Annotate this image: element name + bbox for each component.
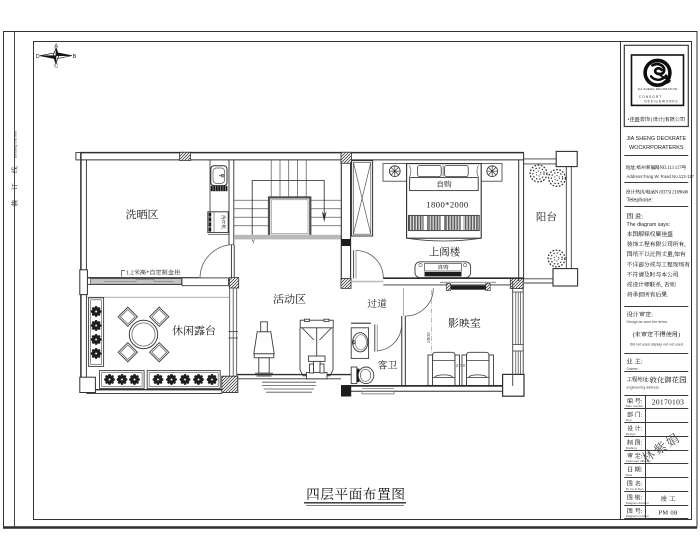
svg-text:业 主:: 业 主:: [627, 357, 643, 366]
svg-text:WOCKRPORATERKS: WOCKRPORATERKS: [629, 145, 684, 151]
svg-text:Diagram division: Diagram division: [626, 501, 649, 505]
svg-text:图 名:: 图 名:: [627, 478, 643, 487]
svg-text:B: B: [73, 54, 77, 60]
svg-text:20170103: 20170103: [652, 396, 684, 407]
svg-text:图 说:: 图 说:: [627, 210, 644, 220]
svg-text:不详部分或与工程现场有: 不详部分或与工程现场有: [626, 259, 690, 268]
svg-text:敦化御花园: 敦化御花园: [650, 375, 688, 386]
svg-text:PM 08: PM 08: [658, 507, 677, 516]
svg-text:设计热线/电话N (0373) 2169646: 设计热线/电话N (0373) 2169646: [625, 189, 689, 196]
svg-text:Address:Fang W. Road No.113: Address:Fang W. Road No.113-117: [627, 174, 695, 179]
svg-text:Did not used display not not u: Did not used display not not used: [630, 342, 683, 346]
svg-text:D E S I G N W O R K S: D E S I G N W O R K S: [644, 100, 677, 104]
svg-text:Plan number: Plan number: [626, 404, 644, 408]
svg-text:部 门:: 部 门:: [627, 409, 643, 418]
svg-text:图纸不以比例丈量,如有: 图纸不以比例丈量,如有: [627, 249, 686, 258]
svg-text:•佳盛装饰 [设计]有限公司: •佳盛装饰 [设计]有限公司: [628, 116, 685, 123]
svg-text:影映室: 影映室: [448, 315, 481, 331]
svg-text:日 期:: 日 期:: [627, 464, 643, 473]
svg-text:Diagram number: Diagram number: [626, 514, 649, 518]
svg-text:将承担所有后果.: 将承担所有后果.: [627, 290, 669, 299]
svg-text:Dep.: Dep.: [626, 418, 633, 422]
svg-text:A: A: [54, 44, 58, 50]
svg-text:图 别:: 图 别:: [627, 492, 643, 501]
svg-text:Binding the line: Binding the line: [13, 130, 18, 158]
svg-text:阳台: 阳台: [536, 210, 557, 225]
svg-text:上阁楼: 上阁楼: [429, 245, 461, 260]
svg-text:四层平面布置图: 四层平面布置图: [306, 483, 405, 503]
svg-text:Dr ins ts Des: Dr ins ts Des: [626, 487, 644, 491]
svg-text:设计审定:: 设计审定:: [627, 309, 654, 318]
svg-text:JIA SHENG DECORATION: JIA SHENG DECORATION: [638, 87, 678, 91]
svg-text:Owner:: Owner:: [627, 367, 639, 371]
svg-text:D: D: [36, 54, 40, 60]
svg-text:engineering address: engineering address: [627, 385, 660, 389]
svg-text:竣 工: 竣 工: [660, 494, 676, 503]
svg-text:C O N S O R T: C O N S O R T: [639, 95, 662, 99]
svg-text:客卫: 客卫: [377, 358, 398, 372]
svg-text:装 订 线: 装 订 线: [10, 163, 20, 208]
svg-text:装饰工程有限公司所有,: 装饰工程有限公司所有,: [627, 239, 686, 248]
svg-text:本图解释权属佳盛: 本图解释权属佳盛: [626, 229, 673, 238]
svg-text:休闲露台: 休闲露台: [172, 323, 216, 339]
svg-text:Telephone:: Telephone:: [627, 198, 653, 204]
svg-text:不符请及时与本公司: 不符请及时与本公司: [626, 269, 679, 278]
svg-text:JIA SHENG DECKRATE: JIA SHENG DECKRATE: [626, 136, 686, 142]
svg-text:2800: 2800: [426, 332, 432, 343]
svg-text:Date: Date: [626, 473, 633, 477]
svg-text:The diagram says:: The diagram says:: [627, 222, 671, 228]
svg-text:1800*2000: 1800*2000: [426, 199, 468, 211]
svg-text:地址:郑州幸福路NO.113 117号: 地址:郑州幸福路NO.113 117号: [625, 164, 687, 171]
svg-text:或设计师联系, 否则: 或设计师联系, 否则: [627, 280, 676, 289]
svg-text:1.2米高*自定制金柜: 1.2米高*自定制金柜: [126, 268, 181, 277]
svg-text:Design as were the items:: Design as were the items:: [627, 320, 668, 324]
svg-text:设 计:: 设 计:: [627, 423, 643, 432]
svg-text:活动区: 活动区: [273, 291, 306, 307]
svg-text:过道: 过道: [367, 296, 387, 310]
svg-text:Drafting: Drafting: [626, 446, 637, 450]
svg-text:2700: 2700: [456, 363, 466, 368]
svg-text:制 图:: 制 图:: [627, 437, 643, 446]
svg-text:C: C: [54, 64, 58, 70]
svg-text:自购: 自购: [436, 179, 452, 190]
svg-text:洗晒区: 洗晒区: [126, 207, 159, 223]
svg-text:自购: 自购: [438, 263, 449, 271]
svg-text:工程地址:: 工程地址:: [627, 375, 651, 383]
svg-text:洗衣机: 洗衣机: [220, 215, 226, 229]
svg-text:(未审定不得使用): (未审定不得使用): [633, 329, 680, 338]
svg-text:Design: Design: [626, 432, 636, 436]
svg-text:Y: Y: [252, 240, 256, 246]
